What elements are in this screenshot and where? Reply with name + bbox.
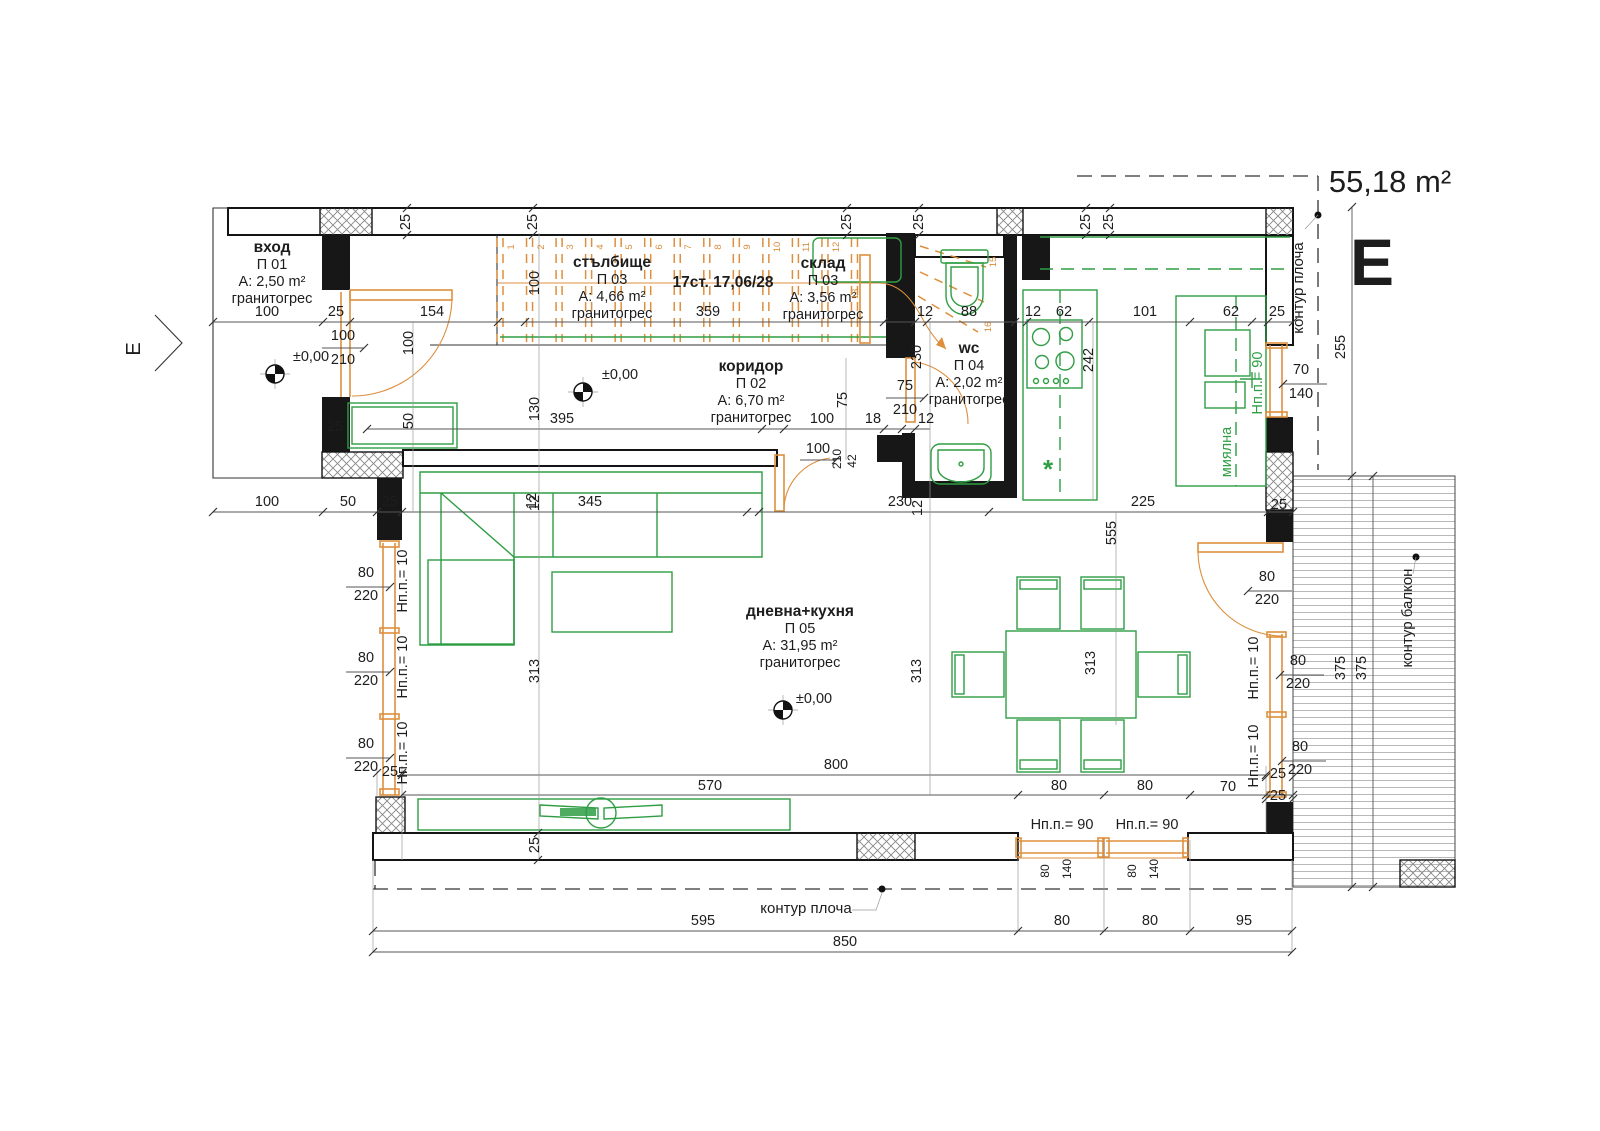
level-symbol	[568, 377, 598, 407]
dim-label: 25	[382, 494, 398, 510]
room-id: П 03	[808, 273, 839, 289]
dim-label: 80	[1054, 913, 1070, 929]
dim-label: 345	[578, 494, 602, 510]
dining-table	[1006, 631, 1136, 718]
dim-label: 230	[909, 345, 925, 369]
dim-label: 88	[961, 304, 977, 320]
dim-label: 220	[1288, 762, 1312, 778]
dim-label: 70	[1293, 362, 1309, 378]
dim-label: 220	[354, 759, 378, 775]
stair-number: 10	[772, 242, 783, 253]
room-floor: гранитогрес	[711, 410, 792, 426]
dim-label: 50	[340, 494, 356, 510]
level-mark-living: ±0,00	[796, 691, 832, 707]
dim-label: 25	[525, 214, 541, 230]
dim-label: Нп.п.= 90	[1116, 817, 1179, 833]
dim-label: 12	[910, 500, 926, 516]
section-letter-label: E	[1350, 225, 1394, 299]
level-symbol	[768, 695, 798, 725]
dim-label: 395	[550, 411, 574, 427]
room-name: стълбище	[573, 254, 651, 271]
room-floor: гранитогрес	[783, 307, 864, 323]
dim-label: 25	[911, 214, 927, 230]
dim-label: 75	[897, 378, 913, 394]
dim-label: 210	[331, 352, 355, 368]
room-id: П 01	[257, 257, 288, 273]
room-area: A: 2,50 m²	[239, 274, 306, 290]
dim-label: 18	[865, 411, 881, 427]
dim-label: 25	[527, 837, 543, 853]
dim-label: 12	[917, 304, 933, 320]
dim-label: 100	[527, 271, 543, 295]
dim-label: 100	[255, 494, 279, 510]
dim-label: 800	[824, 757, 848, 773]
dim-label: 100	[810, 411, 834, 427]
window-kitchen	[1266, 343, 1287, 417]
dim-label: 313	[527, 659, 543, 683]
balcony-contour-label: контур балкон	[1399, 569, 1416, 668]
floor-plan-page: 55,18 m² E 25252525252510025154359128812…	[0, 0, 1600, 1131]
dim-label: Нп.п.= 10	[1246, 637, 1262, 700]
dim-label: 80	[1051, 778, 1067, 794]
room-id: П 02	[736, 376, 767, 392]
room-name: wc	[958, 340, 980, 357]
dim-label: 210	[893, 402, 917, 418]
dim-label: 25	[1270, 788, 1286, 804]
balcony-door	[1198, 543, 1283, 636]
dim-label: 313	[909, 659, 925, 683]
windows-bottom	[1016, 838, 1188, 858]
slab-contour-label: контур плоча	[1290, 242, 1307, 334]
corridor-door	[775, 455, 830, 511]
room-area: A: 31,95 m²	[763, 638, 838, 654]
dim-label: 100	[331, 328, 355, 344]
room-name: дневна+кухня	[746, 603, 854, 620]
dim-label: 101	[1133, 304, 1157, 320]
room-floor: гранитогрес	[572, 306, 653, 322]
dim-label: 375	[1354, 656, 1370, 680]
dining-set	[952, 577, 1190, 772]
dishwasher-mark: *	[1043, 454, 1054, 484]
dim-label: 25	[1271, 497, 1287, 513]
dim-label: 255	[1333, 335, 1349, 359]
dim-label: 140	[1147, 859, 1161, 879]
dim-label: 70	[1220, 779, 1236, 795]
dim-label: 25	[328, 304, 344, 320]
balcony	[1293, 476, 1455, 887]
stair-number: 15	[988, 257, 999, 268]
room-id: П 04	[954, 358, 985, 374]
dim-label: 25	[398, 214, 414, 230]
dim-label: 210	[830, 449, 844, 469]
slab-contour-label: контур плоча	[760, 900, 852, 917]
dim-label: 25	[839, 214, 855, 230]
room-area: A: 4,66 m²	[579, 289, 646, 305]
stair-number: 6	[654, 244, 665, 249]
dim-label: 154	[420, 304, 444, 320]
dim-label: 375	[1333, 656, 1349, 680]
stair-number: 11	[801, 242, 812, 252]
tv-cabinet	[418, 798, 790, 830]
level-mark-corridor: ±0,00	[602, 367, 638, 383]
stair-number: 1	[506, 244, 517, 249]
dim-label: 850	[833, 934, 857, 950]
room-id: П 03	[597, 272, 628, 288]
dim-label: Нп.п.= 10	[1246, 725, 1262, 788]
dim-label: 555	[1104, 521, 1120, 545]
storage-door-leaf	[860, 255, 870, 343]
stair-number: 9	[742, 244, 753, 249]
dim-label: 80	[358, 650, 374, 666]
dim-label: 62	[1056, 304, 1072, 320]
dim-label: 80	[1290, 653, 1306, 669]
dim-label: 220	[1255, 592, 1279, 608]
stair-number: 3	[565, 244, 576, 249]
room-floor: гранитогрес	[232, 291, 313, 307]
dim-label: Нп.п.= 90	[1031, 817, 1094, 833]
dim-label: 80	[1125, 864, 1139, 878]
stair-number: 8	[713, 244, 724, 249]
dim-label: 80	[358, 736, 374, 752]
dim-label: 230	[888, 494, 912, 510]
dim-label: 95	[1236, 913, 1252, 929]
dim-label: 12	[1025, 304, 1041, 320]
stair-number: 12	[831, 242, 842, 253]
stair-number: 5	[624, 244, 635, 249]
room-area: A: 2,02 m²	[936, 375, 1003, 391]
dim-label: 80	[1292, 739, 1308, 755]
dim-label: Нп.п.= 10	[395, 550, 411, 613]
dim-label: 62	[1223, 304, 1239, 320]
dim-label: 25	[1270, 766, 1286, 782]
dim-label: 25	[1101, 214, 1117, 230]
furniture	[348, 237, 1290, 830]
dim-label: 220	[354, 588, 378, 604]
dim-label: 130	[527, 397, 543, 421]
sink-label: миялна	[1219, 426, 1235, 477]
room-floor: гранитогрес	[929, 392, 1010, 408]
level-symbol	[260, 359, 290, 389]
stair-number: 4	[595, 244, 606, 249]
stair-number: 16	[983, 322, 994, 333]
stair-number: 2	[536, 244, 547, 249]
stair-note: 17ст. 17,06/28	[672, 274, 773, 291]
dim-label: 80	[358, 565, 374, 581]
dim-label: 75	[835, 392, 851, 408]
dim-label: 42	[845, 454, 859, 468]
dim-label: 140	[1060, 859, 1074, 879]
level-mark-entry: ±0,00	[293, 349, 329, 365]
stair-number: 13	[850, 289, 861, 300]
total-area-label: 55,18 m²	[1329, 164, 1451, 199]
dim-label: 595	[691, 913, 715, 929]
dim-label: 359	[696, 304, 720, 320]
dim-label: Нп.п.= 90	[1250, 352, 1266, 415]
dim-label: 50	[401, 413, 417, 429]
dim-label: 570	[698, 778, 722, 794]
dim-label: 25	[1269, 304, 1285, 320]
room-name: коридор	[719, 358, 784, 375]
dim-label: 100	[401, 331, 417, 355]
dim-label: 313	[1083, 651, 1099, 675]
dim-label: 220	[1286, 676, 1310, 692]
dim-label: 12	[524, 493, 540, 509]
room-id: П 05	[785, 621, 816, 637]
dim-label: 100	[806, 441, 830, 457]
dim-label: 25	[1078, 214, 1094, 230]
dim-label: 242	[1081, 348, 1097, 372]
dim-label: 80	[1259, 569, 1275, 585]
coffee-table	[552, 572, 672, 632]
balcony-pier-hatch	[1400, 860, 1455, 887]
stair-number: 7	[683, 244, 694, 249]
dim-label: 140	[1289, 386, 1313, 402]
floor-plan-drawing: 55,18 m² E 25252525252510025154359128812…	[0, 0, 1600, 1131]
section-marker	[155, 315, 182, 371]
dim-label: 225	[1131, 494, 1155, 510]
dim-label: 80	[1038, 864, 1052, 878]
section-marker-letter: Е	[123, 342, 145, 355]
room-area: A: 6,70 m²	[718, 393, 785, 409]
room-floor: гранитогрес	[760, 655, 841, 671]
dim-label: 25	[327, 419, 343, 435]
dim-label: 12	[918, 411, 934, 427]
room-area: A: 3,56 m²	[790, 290, 857, 306]
dim-label: 80	[1142, 913, 1158, 929]
cooktop	[1027, 320, 1082, 388]
room-name: склад	[801, 255, 846, 272]
dim-label: 80	[1137, 778, 1153, 794]
dim-label: 25	[382, 764, 398, 780]
dim-label: 220	[354, 673, 378, 689]
room-name: вход	[254, 239, 291, 256]
dim-label: Нп.п.= 10	[395, 636, 411, 699]
